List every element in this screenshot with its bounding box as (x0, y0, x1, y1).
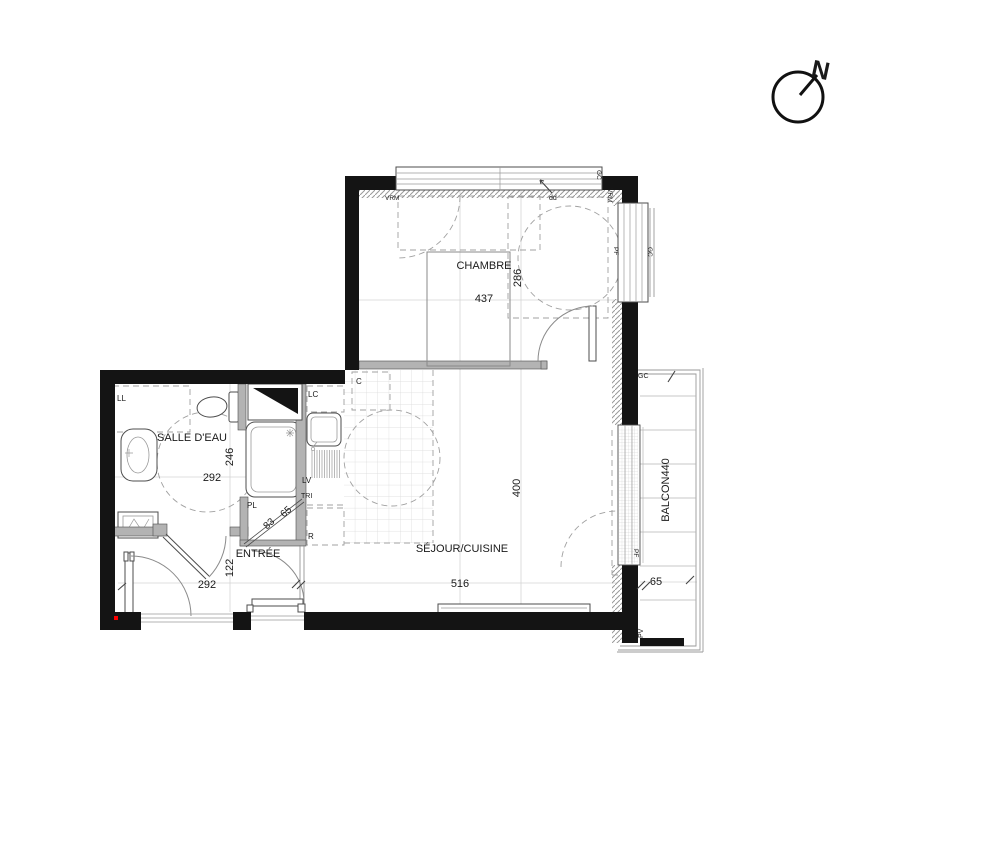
label-cooktop: C (356, 377, 362, 386)
washer-zone (113, 386, 190, 432)
label-door-note: dd (549, 195, 557, 202)
balcony-edge-bar (640, 638, 684, 646)
partitions (113, 361, 547, 546)
label-shutter-right: VRM (606, 188, 613, 202)
door-chambre (538, 306, 596, 361)
toilet (196, 392, 239, 422)
wall-bath-top (100, 370, 345, 384)
label-pv: PV (638, 628, 645, 638)
dim-entree-depth: 122 (224, 559, 236, 577)
label-pf-right: PF (612, 247, 619, 255)
dim-bath-width: 292 (203, 472, 221, 484)
label-guardrail-right: GC (646, 247, 653, 257)
wall-chambre-right-top (622, 176, 638, 206)
room-label-salle-deau: SALLE D'EAU (157, 432, 227, 444)
wall-sejour-right-top (622, 368, 638, 425)
window-chambre-top (396, 167, 602, 190)
wall-left (100, 370, 115, 630)
floor-plan: N CHAMBRE 437 286 SALLE D'EAU 246 292 EN… (0, 0, 1000, 857)
kitchen-sink (307, 413, 341, 451)
door-post-bathroom (153, 524, 167, 536)
wall-sejour-right-bottom (622, 565, 638, 643)
room-label-chambre: CHAMBRE (456, 260, 511, 272)
label-closet: PL (247, 501, 257, 510)
floor-plan-svg: N CHAMBRE 437 286 SALLE D'EAU 246 292 EN… (0, 0, 1000, 857)
kitchen-drainboard (312, 450, 340, 478)
entrance-door (247, 551, 305, 620)
wall-bottom-c (304, 612, 637, 630)
casement-swing-arc (398, 196, 460, 258)
kitchen-floor-grid (344, 370, 433, 543)
label-guardrail-top: GC (595, 170, 602, 180)
window-swing-zone (398, 196, 540, 250)
technical-shaft (248, 384, 302, 420)
red-marker (114, 616, 118, 620)
shower (246, 422, 301, 497)
wall-chambre-right-bottom (622, 299, 638, 370)
dim-chambre-depth: 286 (512, 269, 524, 287)
label-pf-bay: PF (632, 549, 639, 557)
compass: N (773, 55, 832, 122)
dim-chambre-width: 437 (475, 293, 493, 305)
dim-entree-width: 292 (198, 579, 216, 591)
dim-sejour-width: 516 (451, 578, 469, 590)
dim-closet-a: 83 (262, 516, 278, 532)
window-leaf-bottom-left (124, 552, 233, 622)
room-label-balcon: BALCON440 (660, 458, 672, 522)
wall-bottom-b (233, 612, 251, 630)
label-fridge: R (308, 532, 314, 541)
washbasin (121, 429, 157, 481)
label-lc: LC (308, 390, 318, 399)
room-label-sejour: SÉJOUR/CUISINE (416, 542, 508, 555)
closet-wall-bottom (240, 540, 306, 546)
partition-chambre-sejour (359, 361, 547, 369)
turning-circle-chambre (518, 206, 622, 310)
wall-bottom-a (100, 612, 141, 630)
room-label-entree: ENTRÉE (236, 547, 281, 560)
label-tri: TRI (301, 493, 312, 500)
compass-north-label: N (809, 55, 832, 86)
bay-clearance-line (612, 430, 618, 575)
wall-chambre-left (345, 176, 359, 370)
label-dishwasher: LV (302, 476, 312, 485)
door-post-chambre (541, 361, 547, 369)
label-washer: LL (117, 394, 126, 403)
partition-toilet-stub (238, 384, 246, 430)
radiator-sejour (438, 604, 590, 613)
bay-swing-arc (561, 511, 617, 567)
dim-balcon-depth: 65 (650, 576, 662, 588)
bay-window-sejour (618, 425, 643, 565)
label-shutter-top: VRM (385, 195, 399, 202)
dim-sejour-depth: 400 (511, 479, 523, 497)
label-guardrail-balcony: GC (638, 373, 649, 380)
dim-bath-depth: 246 (224, 448, 236, 466)
